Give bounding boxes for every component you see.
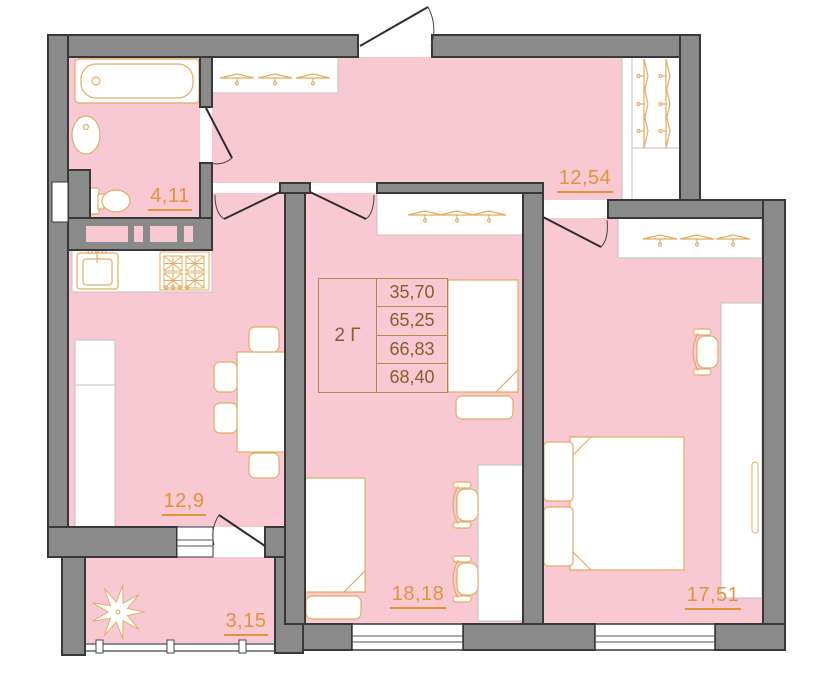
room-area-label-kitchen: 12,9 — [154, 490, 214, 516]
wash-basin — [72, 116, 100, 154]
wall-niche — [52, 182, 68, 222]
radiator — [752, 462, 758, 533]
bathtub — [75, 59, 199, 103]
toilet — [89, 188, 130, 214]
entrance-door — [360, 7, 434, 46]
fridge-cabinet — [75, 340, 115, 527]
living-room-desk — [478, 465, 523, 621]
room-area-label-bathroom: 4,11 — [140, 185, 200, 211]
floor-plan: 4,11 12,54 12,9 18,18 17,51 3,15 2 Г 35,… — [0, 0, 837, 700]
window-living-room — [352, 624, 463, 650]
room-area-label-hallway: 12,54 — [553, 167, 617, 193]
unit-type-label: 2 Г — [319, 279, 377, 392]
unit-area-value: 68,40 — [377, 364, 447, 392]
single-bed-left — [303, 478, 365, 619]
room-area-label-balcony: 3,15 — [216, 610, 276, 636]
unit-area-value: 66,83 — [377, 336, 447, 364]
bedroom-desk — [721, 303, 762, 598]
hallway-wardrobe — [622, 57, 680, 200]
vent-shaft — [86, 226, 193, 242]
room-area-label-bedroom: 17,51 — [679, 584, 747, 610]
room-area-label-living-room: 18,18 — [384, 583, 452, 609]
unit-area-value: 65,25 — [377, 307, 447, 335]
living-room-closet — [377, 193, 530, 235]
unit-area-table: 2 Г 35,70 65,25 66,83 68,40 — [318, 278, 448, 393]
unit-area-value: 35,70 — [377, 279, 447, 307]
bedroom-wardrobe — [618, 218, 762, 258]
single-bed-right — [448, 280, 518, 419]
window-kitchen — [177, 527, 213, 557]
coat-hooks — [212, 57, 338, 93]
window-bedroom — [595, 624, 715, 650]
kitchen-sink — [77, 249, 118, 289]
